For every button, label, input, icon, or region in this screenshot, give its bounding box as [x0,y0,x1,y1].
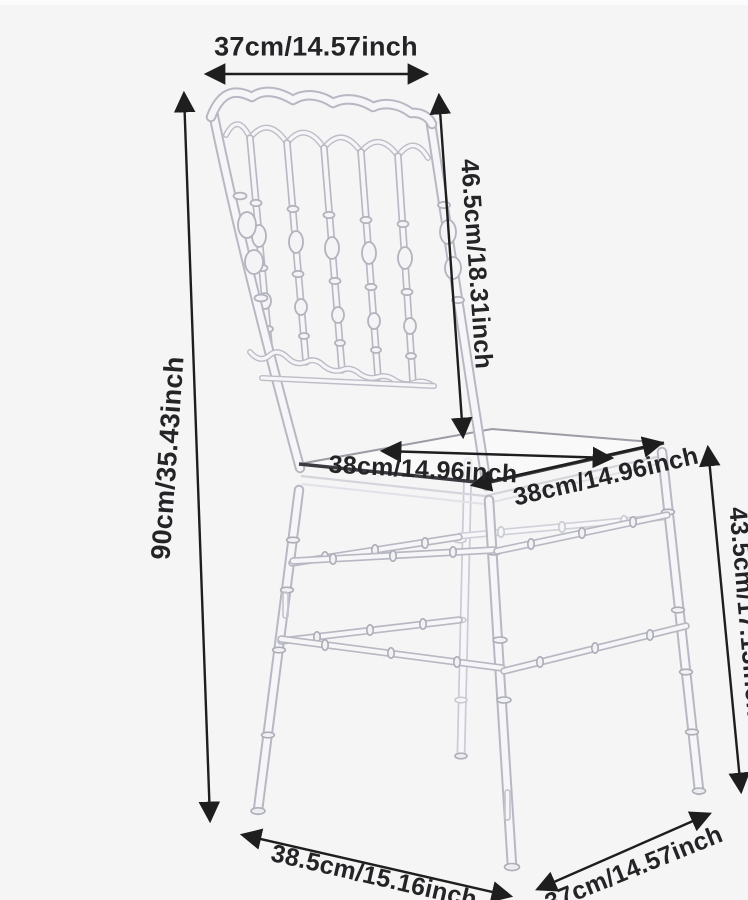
chair-backrest [211,92,487,486]
dimension-label-backrest-top-width: 37cm/14.57inch [214,32,418,63]
chair-stretchers [281,515,686,671]
product-dimension-diagram: 37cm/14.57inch 90cm/35.43inch 46.5cm/18.… [0,0,748,900]
chair-illustration [0,0,748,900]
